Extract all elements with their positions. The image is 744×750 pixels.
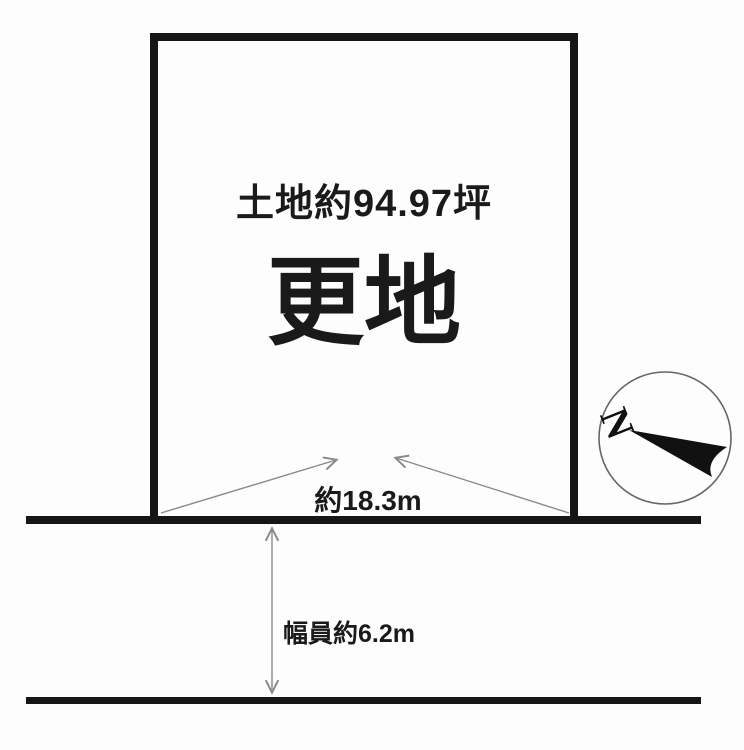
land-area-label: 土地約94.97坪	[150, 172, 578, 227]
land-plot-diagram: N 土地約94.97坪 更地 約18.3m 幅員約6.2m	[0, 0, 744, 750]
land-status-label: 更地	[150, 252, 578, 354]
frontage-dimension-label: 約18.3m	[248, 479, 488, 519]
compass: N	[591, 372, 731, 504]
road-width-dimension-label: 幅員約6.2m	[283, 614, 415, 650]
